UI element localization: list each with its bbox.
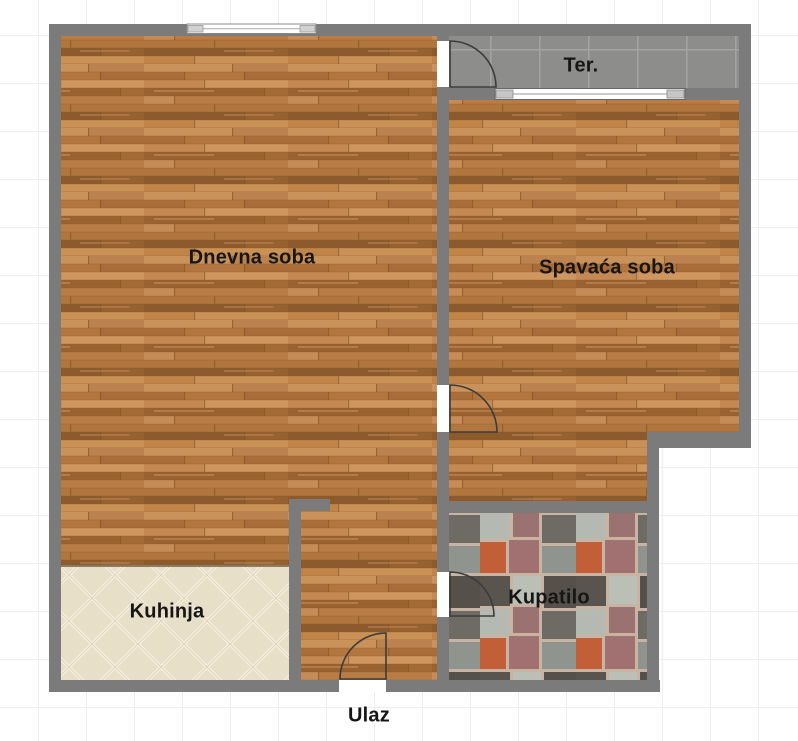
bedroom-floor-lower xyxy=(449,430,647,503)
wall-bathroom-right xyxy=(647,432,659,692)
window-bedroom xyxy=(495,89,685,100)
room-label-ulaz: Ulaz xyxy=(348,705,390,728)
wall-terrace-bedroom-left xyxy=(449,88,495,100)
wall-step xyxy=(647,432,751,448)
wall-left xyxy=(49,24,61,692)
window-living-room xyxy=(187,24,316,34)
wall-top xyxy=(49,24,751,36)
wall-kitchen-stub xyxy=(289,499,330,511)
floor-plan-canvas: Dnevna soba Spavaća soba Ter. Kuhinja Ku… xyxy=(0,0,798,741)
room-label-kuhinja: Kuhinja xyxy=(130,601,205,624)
wall-kitchen-right xyxy=(289,499,301,680)
room-label-kupatilo: Kupatilo xyxy=(508,587,590,610)
wall-terrace-bedroom-right xyxy=(685,88,739,100)
kitchen-boundary-line xyxy=(61,565,289,567)
room-label-dnevna-soba: Dnevna soba xyxy=(189,247,316,270)
wall-bathroom-top xyxy=(449,501,659,513)
wall-right xyxy=(739,24,751,448)
room-label-terasa: Ter. xyxy=(564,55,599,78)
kitchen-floor xyxy=(61,567,289,680)
floor-plan-drawing xyxy=(0,0,798,741)
room-label-spavaca-soba: Spavaća soba xyxy=(539,257,675,280)
floors xyxy=(61,36,739,680)
